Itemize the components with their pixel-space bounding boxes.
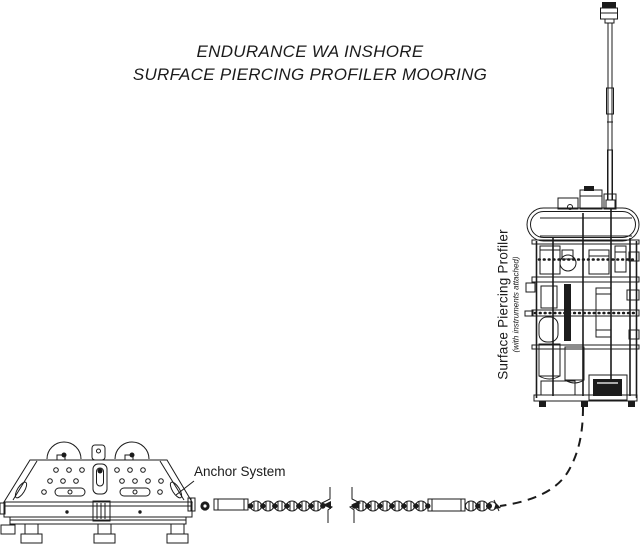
chain-swivel-right xyxy=(428,499,465,511)
profiler-label-title: Surface Piercing Profiler xyxy=(496,225,511,385)
mooring-chain xyxy=(200,487,501,523)
anchor-assembly xyxy=(0,442,195,543)
beacon-light xyxy=(601,2,618,23)
anchor-label: Anchor System xyxy=(194,464,286,479)
riser-shackle xyxy=(486,500,501,511)
profiler-label: Surface Piercing Profiler (with instrume… xyxy=(496,225,521,385)
mooring-diagram: ENDURANCE WA INSHORE SURFACE PIERCING PR… xyxy=(0,0,640,544)
riser-line-dashed xyxy=(500,407,583,506)
mast xyxy=(607,23,614,200)
mooring-artwork xyxy=(0,0,640,544)
chain-swivel-left xyxy=(214,499,248,510)
profiler-label-subtitle: (with instruments attached) xyxy=(512,225,521,385)
anchor-hole-pattern xyxy=(42,468,164,495)
break-symbol-left xyxy=(322,487,332,523)
